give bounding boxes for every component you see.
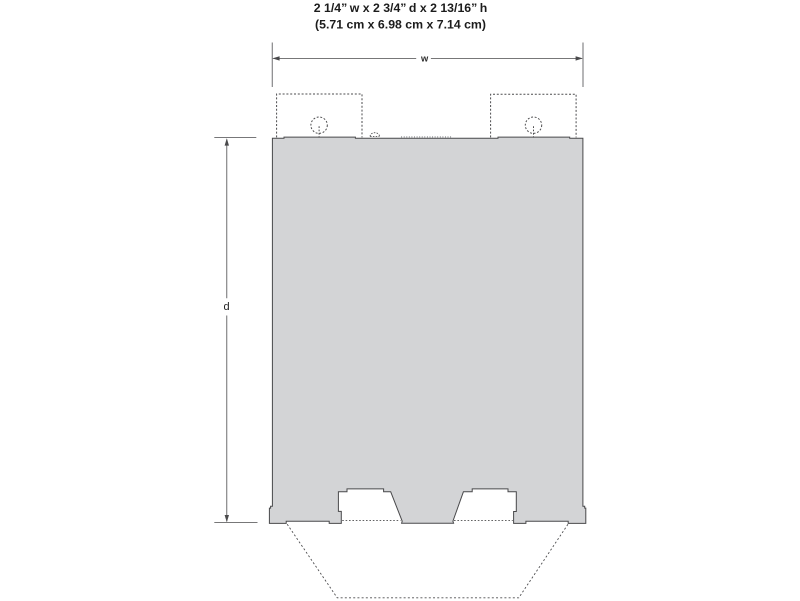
- svg-text:(5.71 cm x 6.98 cm x 7.14 cm): (5.71 cm x 6.98 cm x 7.14 cm): [315, 17, 486, 31]
- svg-text:2 1/4” w x 2 3/4” d x 2 13/16”: 2 1/4” w x 2 3/4” d x 2 13/16” h: [314, 1, 488, 15]
- svg-text:w: w: [420, 54, 429, 64]
- svg-text:d: d: [224, 301, 230, 313]
